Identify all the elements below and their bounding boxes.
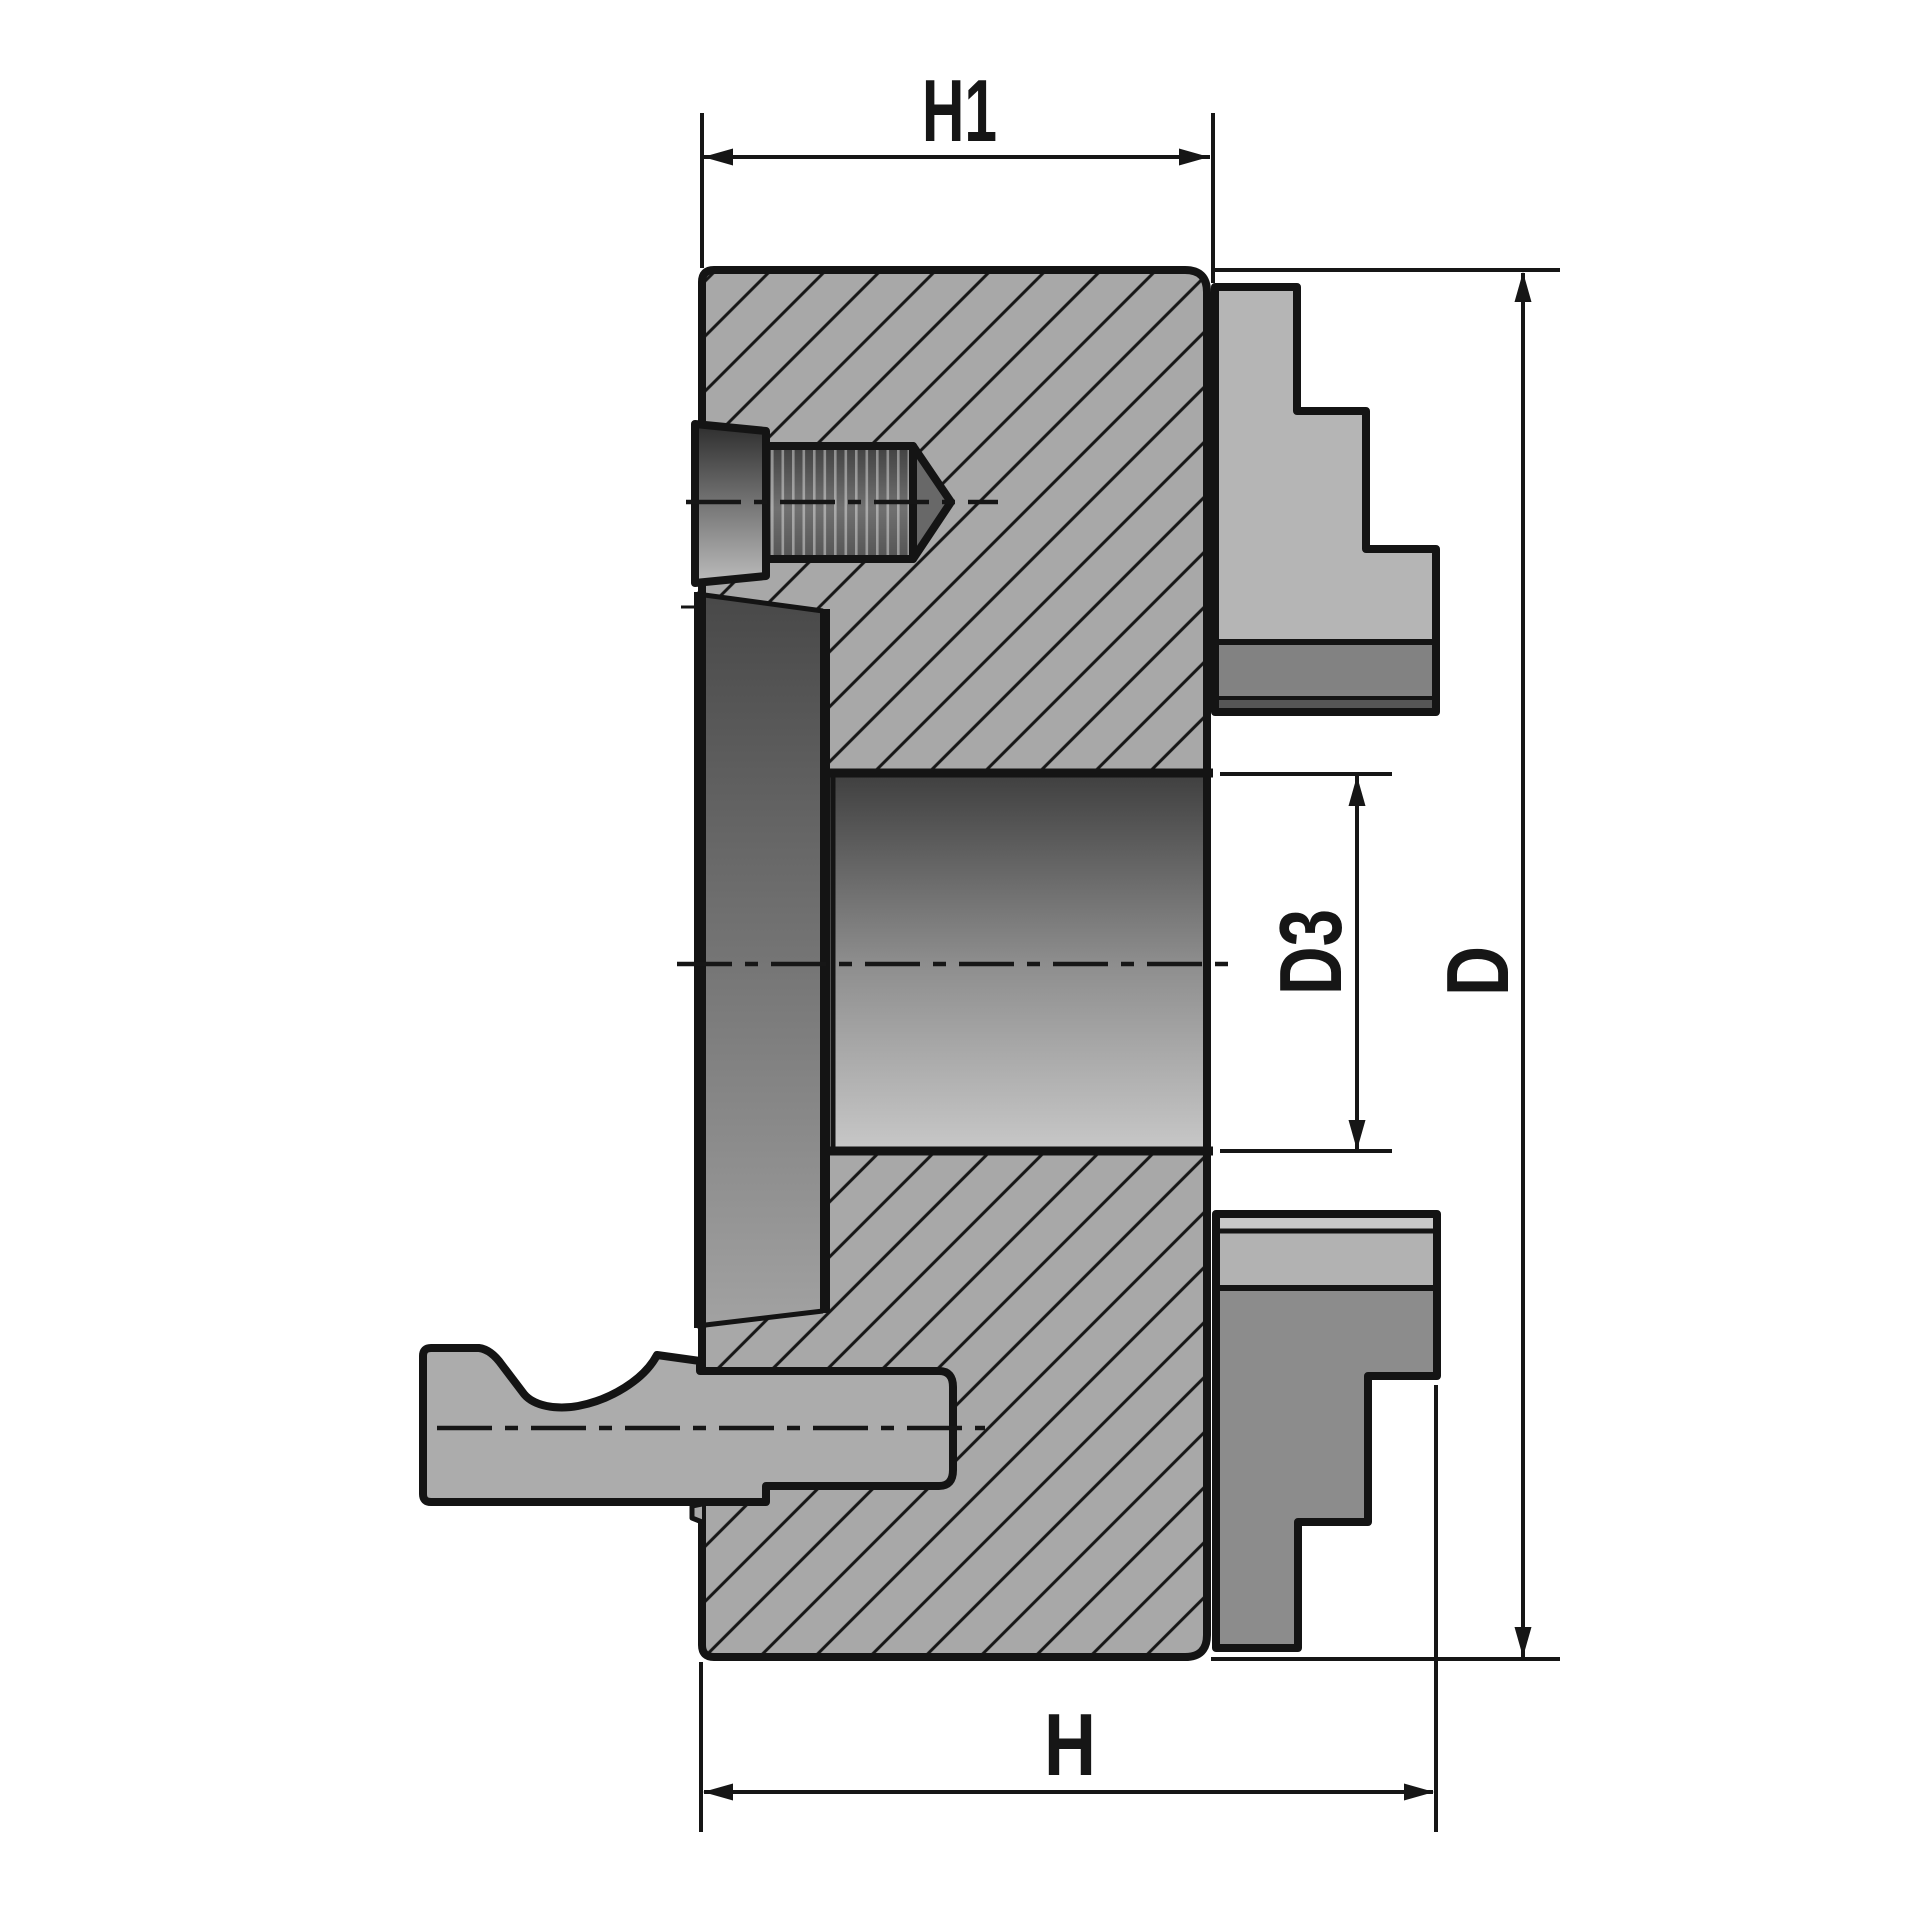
svg-text:D: D <box>1428 946 1527 996</box>
svg-text:D3: D3 <box>1261 909 1360 995</box>
svg-text:H: H <box>1044 1695 1096 1794</box>
svg-text:H1: H1 <box>922 61 997 160</box>
